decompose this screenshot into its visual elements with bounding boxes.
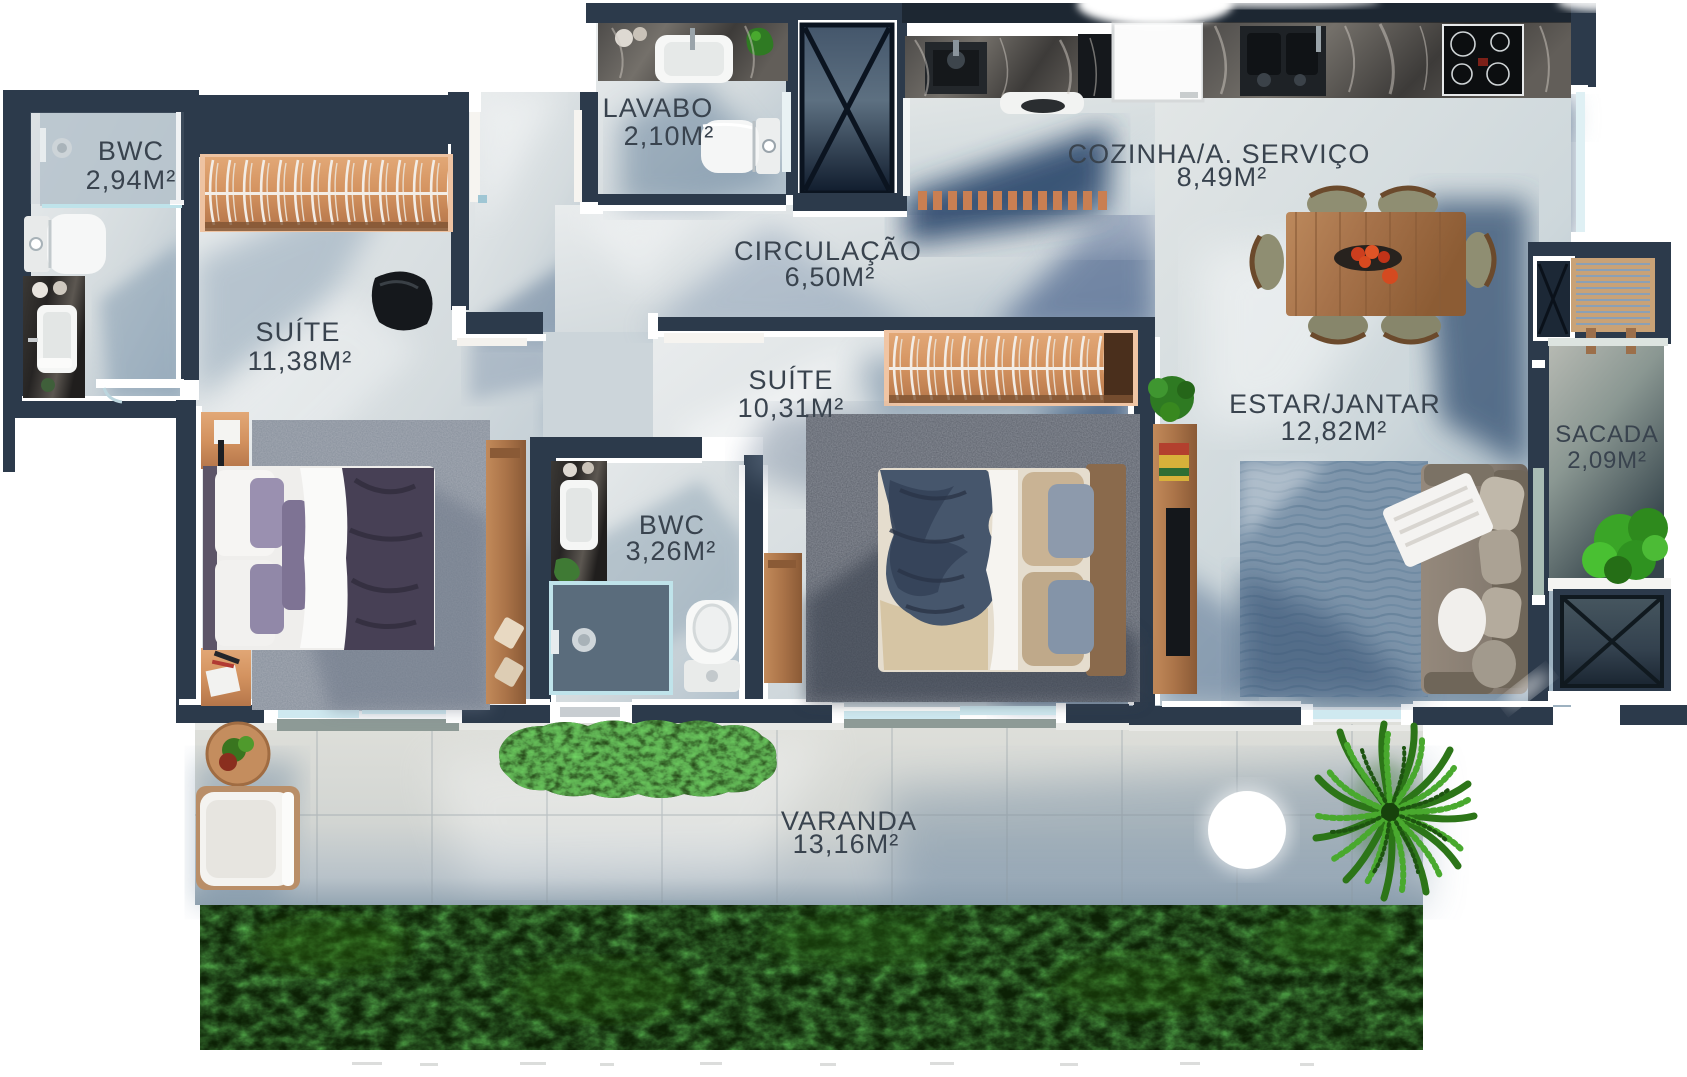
svg-text:2,09M²: 2,09M²	[1567, 447, 1647, 474]
svg-text:BWC: BWC	[98, 136, 164, 166]
svg-text:2,94M²: 2,94M²	[86, 165, 177, 195]
svg-text:ESTAR/JANTAR: ESTAR/JANTAR	[1229, 389, 1441, 419]
svg-text:3,26M²: 3,26M²	[626, 536, 717, 566]
svg-text:2,10M²: 2,10M²	[624, 121, 715, 151]
svg-text:10,31M²: 10,31M²	[738, 393, 845, 423]
svg-text:6,50M²: 6,50M²	[785, 262, 876, 292]
svg-text:SUÍTE: SUÍTE	[255, 317, 340, 347]
svg-text:11,38M²: 11,38M²	[248, 346, 353, 376]
svg-text:12,82M²: 12,82M²	[1281, 416, 1388, 446]
svg-text:13,16M²: 13,16M²	[793, 829, 900, 859]
svg-text:LAVABO: LAVABO	[603, 93, 714, 123]
svg-text:SUÍTE: SUÍTE	[748, 365, 833, 395]
svg-text:SACADA: SACADA	[1555, 421, 1659, 448]
svg-text:8,49M²: 8,49M²	[1177, 162, 1268, 192]
